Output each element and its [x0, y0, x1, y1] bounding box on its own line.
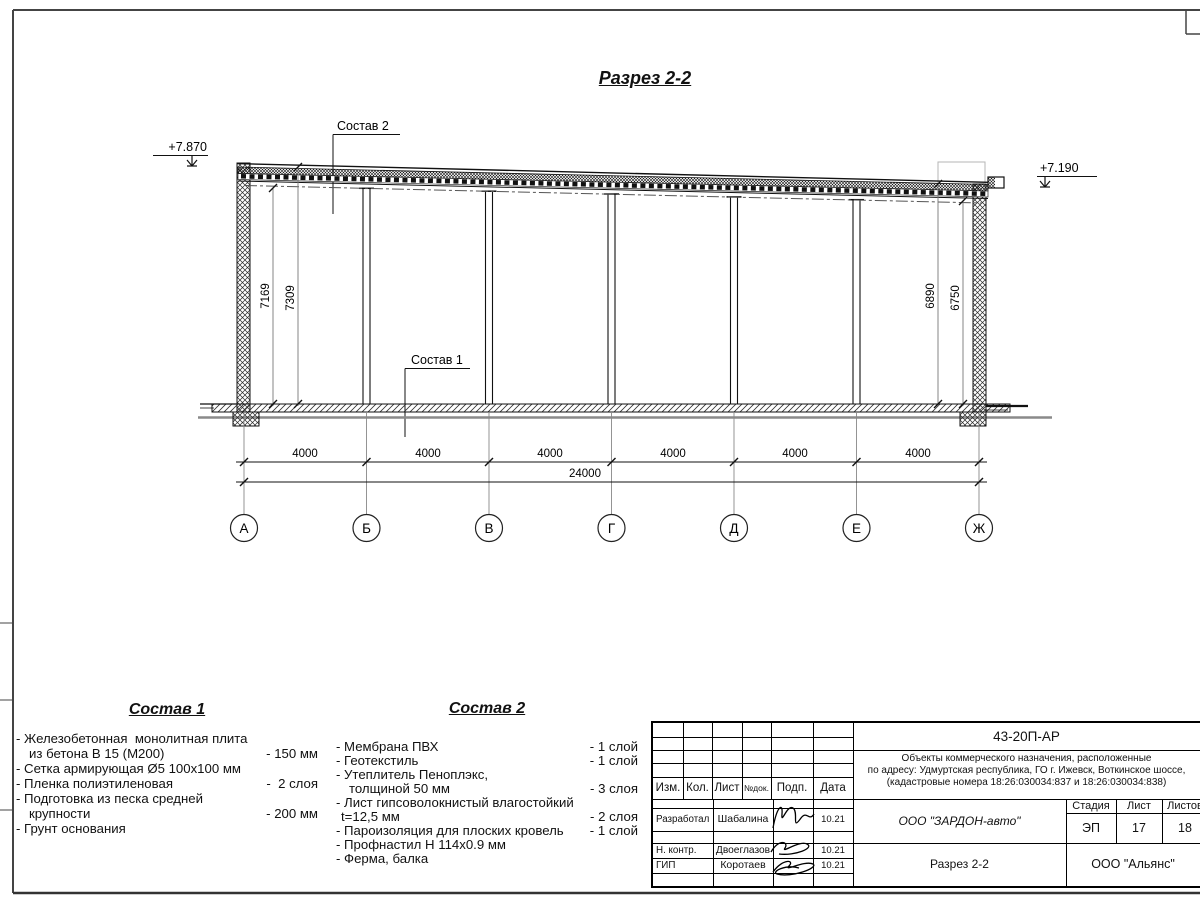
axis-bubbles: А Б В Г Д Е Ж [231, 515, 993, 542]
signature-icon [769, 798, 817, 834]
roof-assembly [237, 164, 1004, 203]
bay-dim-4: 4000 [660, 448, 686, 460]
axis-e: Е [852, 521, 861, 536]
tb-doc-code: 43-20П-АР [853, 723, 1200, 750]
tb-header-podp: Подп. [771, 777, 813, 799]
bay-dim-3: 4000 [537, 448, 563, 460]
bay-dim-1: 4000 [292, 448, 318, 460]
tb-name-developer: Шабалина [713, 808, 773, 831]
sostav2-block: Состав 2 - Мембрана ПВХ- 1 слой - Геотек… [336, 702, 638, 866]
tb-role-ncontrol: Н. контр. [656, 843, 713, 858]
list-item: крупности- 200 мм [16, 806, 318, 821]
sostav1-block: Состав 1 - Железобетонная монолитная пли… [16, 702, 318, 836]
list-item: - Ферма, балка [336, 852, 638, 866]
list-item: t=12,5 мм- 2 слоя [336, 810, 638, 824]
tb-sheet-value: 17 [1116, 813, 1162, 843]
leader-sostav1: Состав 1 [405, 353, 470, 437]
tb-name-gip: Коротаев [713, 858, 773, 873]
list-item: толщиной 50 мм- 3 слоя [336, 782, 638, 796]
tb-sheets-value: 18 [1162, 813, 1200, 843]
tb-stage-label: Стадия [1066, 799, 1116, 813]
dim-7169: 7169 [260, 283, 272, 309]
drawing-title: Разрез 2-2 [545, 68, 745, 89]
list-item: - Подготовка из песка средней [16, 791, 318, 806]
axis-g: Г [608, 521, 616, 536]
tb-header-data: Дата [813, 777, 853, 799]
axis-b: Б [362, 521, 371, 536]
elevation-right-text: +7.190 [1040, 161, 1079, 175]
dim-7309: 7309 [285, 285, 297, 311]
tb-date-developer: 10.21 [813, 808, 853, 831]
tb-contractor: ООО "Альянс" [1066, 843, 1200, 886]
title-block: Изм. Кол. Лист №док. Подп. Дата Разработ… [651, 721, 1200, 888]
axis-a: А [239, 521, 248, 536]
list-item: - Утеплитель Пеноплэкс, [336, 768, 638, 782]
dim-6750: 6750 [950, 285, 962, 311]
tb-header-ndok: №док. [742, 777, 771, 799]
signature-icon [765, 834, 821, 884]
tb-role-developer: Разработал [656, 808, 713, 831]
axis-zh: Ж [973, 521, 986, 536]
tb-project-line1: Объекты коммерческого назначения, распол… [853, 753, 1200, 765]
tb-company: ООО "ЗАРДОН-авто" [853, 799, 1066, 843]
tb-project-line3: (кадастровые номера 18:26:030034:837 и 1… [853, 777, 1200, 789]
walls [237, 162, 986, 412]
axis-v: В [484, 521, 493, 536]
elevation-left-text: +7.870 [168, 140, 207, 154]
list-item: - Сетка армирующая Ø5 100х100 мм [16, 761, 318, 776]
leader-sostav2-text: Состав 2 [337, 119, 389, 133]
list-item: - Профнастил Н 114х0.9 мм [336, 838, 638, 852]
tb-sheet-label: Лист [1116, 799, 1162, 813]
list-item: - Лист гипсоволокнистый влагостойкий [336, 796, 638, 810]
bay-dim-6: 4000 [905, 448, 931, 460]
list-item: - Мембрана ПВХ- 1 слой [336, 740, 638, 754]
sostav1-title: Состав 1 [16, 702, 318, 717]
tb-project-line2: по адресу: Удмуртская республика, ГО г. … [853, 765, 1200, 777]
tb-sheets-label: Листов [1162, 799, 1200, 813]
list-item: - Грунт основания [16, 821, 318, 836]
tb-header-kol: Кол. [683, 777, 712, 799]
axis-lines [244, 412, 979, 514]
elevation-mark-right: +7.190 [1037, 161, 1097, 187]
total-dim: 24000 [569, 468, 601, 480]
sostav2-title: Состав 2 [336, 702, 638, 716]
bay-dim-2: 4000 [415, 448, 441, 460]
list-item: - Железобетонная монолитная плита [16, 731, 318, 746]
tb-header-list: Лист [712, 777, 742, 799]
columns [359, 188, 864, 404]
tb-header-izm: Изм. [653, 777, 683, 799]
tb-name-ncontrol: Двоеглазов [713, 843, 773, 858]
axis-d: Д [729, 521, 738, 536]
list-item: - Геотекстиль- 1 слой [336, 754, 638, 768]
bay-dim-5: 4000 [782, 448, 808, 460]
dim-6890: 6890 [925, 283, 937, 309]
list-item: - Пароизоляция для плоских кровель- 1 сл… [336, 824, 638, 838]
tb-role-gip: ГИП [656, 858, 713, 873]
elevation-mark-left: +7.870 [153, 140, 208, 166]
drawing-sheet: +7.870 +7.190 Состав 2 Состав 1 [0, 0, 1200, 900]
list-item: - Пленка полиэтиленовая- 2 слоя [16, 776, 318, 791]
list-item: из бетона В 15 (М200)- 150 мм [16, 746, 318, 761]
leader-sostav1-text: Состав 1 [411, 353, 463, 367]
tb-sheet-title: Разрез 2-2 [853, 843, 1066, 886]
tb-stage-value: ЭП [1066, 813, 1116, 843]
floor-slab [198, 404, 1052, 426]
